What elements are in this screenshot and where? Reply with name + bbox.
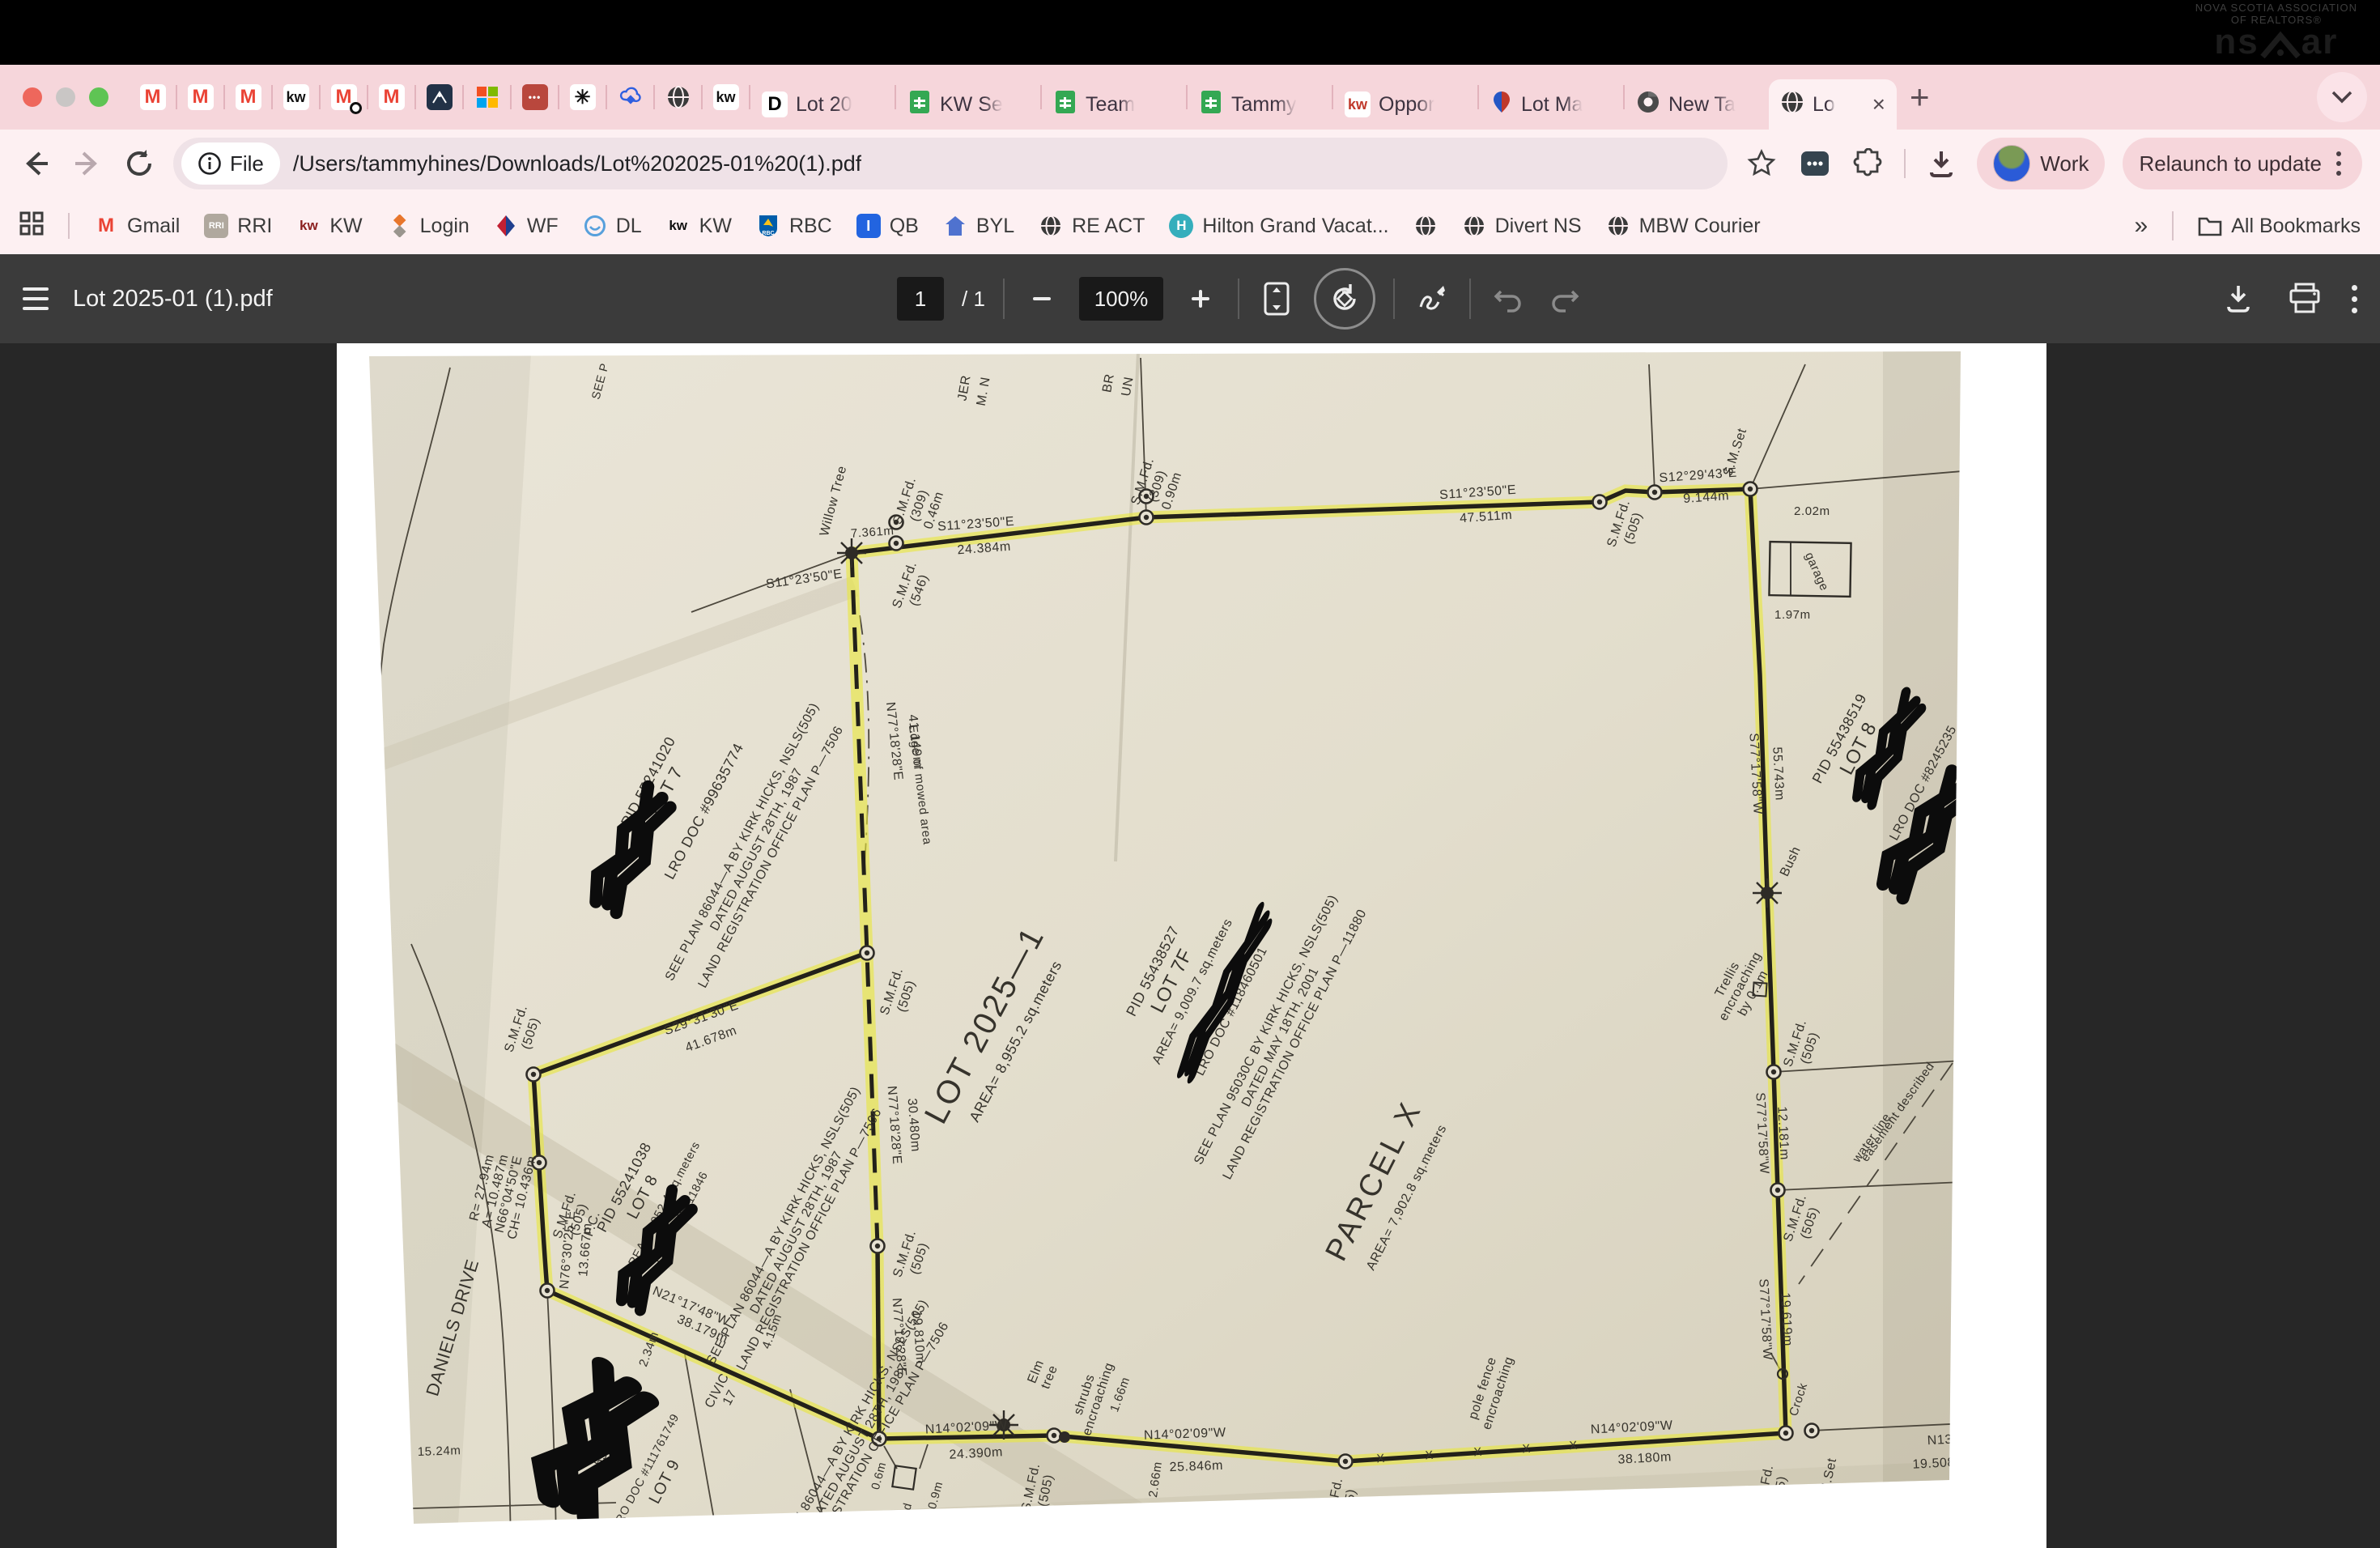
chevron-down-icon <box>2331 91 2352 104</box>
bookmark-gmail[interactable]: MGmail <box>94 214 180 238</box>
kw-icon: kw <box>666 214 691 238</box>
fence-x: X <box>1522 1443 1531 1457</box>
close-window-button[interactable] <box>23 87 42 107</box>
avatar <box>1993 145 2030 182</box>
bookmark-kw[interactable]: kwKW <box>296 214 362 238</box>
bookmark-react[interactable]: RE ACT <box>1039 214 1145 238</box>
kw-red-icon: kw <box>1345 91 1371 117</box>
chrome-icon <box>1636 90 1660 120</box>
fence-x: X <box>1473 1446 1482 1460</box>
bookmark-wf[interactable]: WF <box>494 214 559 238</box>
roof-icon <box>2259 31 2301 58</box>
pdf-more-icon[interactable] <box>2352 285 2357 313</box>
pdf-title: Lot 2025-01 (1).pdf <box>73 286 273 313</box>
bookmark-rbc[interactable]: RBCRBC <box>756 214 832 238</box>
pinned-tab-passwords[interactable]: ••• <box>512 72 558 122</box>
address-bar[interactable]: File /Users/tammyhines/Downloads/Lot%202… <box>173 138 1728 189</box>
smile-circle-icon <box>583 214 607 238</box>
fit-page-button[interactable] <box>1257 279 1296 318</box>
downloads-icon[interactable] <box>1923 146 1959 181</box>
fence-x: X <box>1425 1449 1434 1463</box>
extensions-icon[interactable] <box>1851 146 1886 181</box>
sheets-icon <box>907 90 932 120</box>
map-label: 12.181m <box>1774 1106 1791 1160</box>
hilton-icon: H <box>1169 214 1193 238</box>
map-label: 1.97m <box>1774 608 1811 622</box>
tab-search-button[interactable] <box>2317 72 2367 122</box>
pdf-menu-icon[interactable] <box>23 287 49 310</box>
globe-icon <box>1780 90 1804 120</box>
close-tab-icon[interactable]: × <box>1872 93 1885 116</box>
bookmark-mbw[interactable]: MBW Courier <box>1606 214 1761 238</box>
cloud-sync-icon <box>618 84 644 110</box>
map-label: N14°02'09"W <box>1144 1426 1227 1443</box>
map-label: 19.508m <box>1912 1455 1966 1471</box>
pinned-tab-peak[interactable] <box>416 72 462 122</box>
password-dots-icon: ••• <box>522 84 548 110</box>
bookmark-globe[interactable] <box>1413 214 1438 238</box>
new-tab-button[interactable]: + <box>1910 80 1930 114</box>
pinned-tab-globe[interactable] <box>655 72 701 122</box>
kw-icon: kw <box>296 214 321 238</box>
kw-icon: kw <box>713 84 739 110</box>
zoom-in-button[interactable] <box>1181 279 1220 318</box>
pdf-page: Willow Tree 7.361m S.M.Fd.(309)0.46m S11… <box>337 343 2046 1548</box>
pinned-tab-gmail-alt[interactable]: M <box>321 72 367 122</box>
bookmark-byl[interactable]: BYL <box>943 214 1014 238</box>
globe-icon <box>1606 214 1630 238</box>
pinned-tab-kw[interactable]: kw <box>273 72 319 122</box>
map-label: 55.743m <box>1770 746 1786 801</box>
all-bookmarks-button[interactable]: All Bookmarks <box>2198 215 2361 238</box>
bookmark-rri[interactable]: RRIRRI <box>204 214 272 238</box>
microsoft-icon <box>474 84 500 110</box>
shrub-mark <box>1059 1431 1070 1443</box>
map-label: 38.180m <box>1617 1450 1672 1466</box>
bookmarks-bar: MGmail RRIRRI kwKW Login WF DL kwKW RBCR… <box>0 198 2380 254</box>
pdf-toolbar: Lot 2025-01 (1).pdf 1 / 1 100% <box>0 254 2380 343</box>
qb-icon: I <box>856 214 881 238</box>
apps-grid-icon[interactable] <box>19 211 44 241</box>
bookmark-kw2[interactable]: kwKW <box>666 214 732 238</box>
sheets-icon <box>1053 90 1077 120</box>
pinned-tab-gmail[interactable]: M <box>368 72 414 122</box>
rotate-button[interactable] <box>1314 268 1375 330</box>
tab-tammy-sheet[interactable]: Tammy <box>1188 79 1332 130</box>
tab-kw-sheet[interactable]: KW Se <box>896 79 1040 130</box>
pinned-tab-microsoft[interactable] <box>464 72 510 122</box>
forward-button[interactable] <box>70 146 105 181</box>
wf-diamond-icon <box>494 214 518 238</box>
bookmark-hilton[interactable]: HHilton Grand Vacat... <box>1169 214 1388 238</box>
browser-menu-icon[interactable] <box>2331 151 2346 176</box>
bookmark-login[interactable]: Login <box>387 214 470 238</box>
bookmark-qb[interactable]: IQB <box>856 214 919 238</box>
url-text[interactable]: /Users/tammyhines/Downloads/Lot%202025-0… <box>293 151 861 176</box>
bookmark-dl[interactable]: DL <box>583 214 642 238</box>
zoom-level-input[interactable]: 100% <box>1079 277 1163 321</box>
chatgpt-icon: ✳ <box>570 84 596 110</box>
bookmark-star-icon[interactable] <box>1744 146 1779 181</box>
gmail-icon: M <box>188 84 214 110</box>
bush-symbol <box>1753 878 1782 908</box>
folder-icon <box>2198 215 2222 236</box>
map-label: N13°32'10" <box>1927 1431 1997 1448</box>
map-pin-icon <box>1490 90 1513 120</box>
tab-opportunities[interactable]: kwOppor <box>1333 79 1477 130</box>
pinned-tab-gmail[interactable]: M <box>130 72 176 122</box>
tab-lot-map[interactable]: Lot Ma <box>1479 79 1623 130</box>
map-label: 25.846m <box>1169 1459 1223 1474</box>
fence-x: X <box>1569 1440 1578 1453</box>
survey-plan: Willow Tree 7.361m S.M.Fd.(309)0.46m S11… <box>337 343 2046 1548</box>
nsaar-logo: NOVA SCOTIA ASSOCIATIONOF REALTORS® nsar <box>2195 2 2357 58</box>
sheets-icon <box>1199 90 1223 120</box>
bookmark-divert-ns[interactable]: Divert NS <box>1462 214 1582 238</box>
tab-lot20[interactable]: DLot 20 <box>750 79 895 130</box>
fence-x: X <box>1376 1452 1385 1466</box>
zoom-out-button[interactable] <box>1022 279 1061 318</box>
map-label: 24.390m <box>949 1445 1003 1461</box>
gmail-icon: M <box>379 84 405 110</box>
minimize-window-button[interactable] <box>56 87 75 107</box>
mountain-icon <box>427 84 453 110</box>
globe-icon <box>1462 214 1486 238</box>
map-label: 19.619m <box>1778 1292 1794 1346</box>
pinned-tab-cloud[interactable] <box>607 72 653 122</box>
pinned-tab-kw[interactable]: kw <box>703 72 749 122</box>
print-button[interactable] <box>2285 279 2324 318</box>
pinned-tab-gmail[interactable]: M <box>225 72 271 122</box>
download-button[interactable] <box>2219 279 2258 318</box>
globe-icon <box>1039 214 1063 238</box>
gmail-icon: M <box>94 214 118 238</box>
pinned-tabs: M M M kw M M ••• ✳ kw <box>130 65 750 130</box>
page-number-input[interactable]: 1 <box>897 277 944 321</box>
rbc-shield-icon: RBC <box>756 214 780 238</box>
tab-active-pdf[interactable]: Lo× <box>1769 79 1897 130</box>
password-manager-icon[interactable] <box>1797 146 1833 181</box>
tab-new-tab[interactable]: New Ta <box>1625 79 1769 130</box>
undo-button[interactable] <box>1489 279 1528 318</box>
tab-strip: M M M kw M M ••• ✳ kw DLot 20 KW Se Team… <box>0 65 2380 130</box>
pinned-tab-chatgpt[interactable]: ✳ <box>559 72 606 122</box>
info-icon <box>198 151 222 176</box>
fullscreen-window-button[interactable] <box>89 87 108 107</box>
gmail-icon: M <box>140 84 166 110</box>
map-label: 15.24m <box>418 1444 461 1459</box>
gmail-icon: M <box>236 84 261 110</box>
docusign-icon: D <box>762 91 788 117</box>
redo-button[interactable] <box>1545 279 1584 318</box>
window-controls <box>23 65 130 130</box>
relaunch-button[interactable]: Relaunch to update <box>2123 138 2362 189</box>
reload-button[interactable] <box>121 146 157 181</box>
bookmarks-overflow-button[interactable]: » <box>2135 212 2148 240</box>
tab-team-sheet[interactable]: Team <box>1042 79 1186 130</box>
willow-tree-symbol <box>837 538 866 568</box>
menu-bar: NOVA SCOTIA ASSOCIATIONOF REALTORS® nsar <box>0 0 2380 65</box>
rotate-icon <box>1327 281 1362 317</box>
map-label: 2.02m <box>1794 504 1830 518</box>
kw-icon: kw <box>283 84 309 110</box>
globe-icon <box>665 84 691 110</box>
site-info-chip[interactable]: File <box>181 142 280 185</box>
back-button[interactable] <box>18 146 53 181</box>
pinned-tab-gmail[interactable]: M <box>177 72 223 122</box>
diamonds-icon <box>387 214 411 238</box>
pdf-viewer[interactable]: Willow Tree 7.361m S.M.Fd.(309)0.46m S11… <box>0 343 2380 1548</box>
svg-text:RBC: RBC <box>762 231 774 236</box>
profile-chip[interactable]: Work <box>1977 138 2105 189</box>
globe-icon <box>1413 214 1438 238</box>
rri-icon: RRI <box>204 214 228 238</box>
annotate-button[interactable] <box>1413 279 1451 318</box>
house-icon <box>943 214 967 238</box>
browser-toolbar: File /Users/tammyhines/Downloads/Lot%202… <box>0 130 2380 198</box>
